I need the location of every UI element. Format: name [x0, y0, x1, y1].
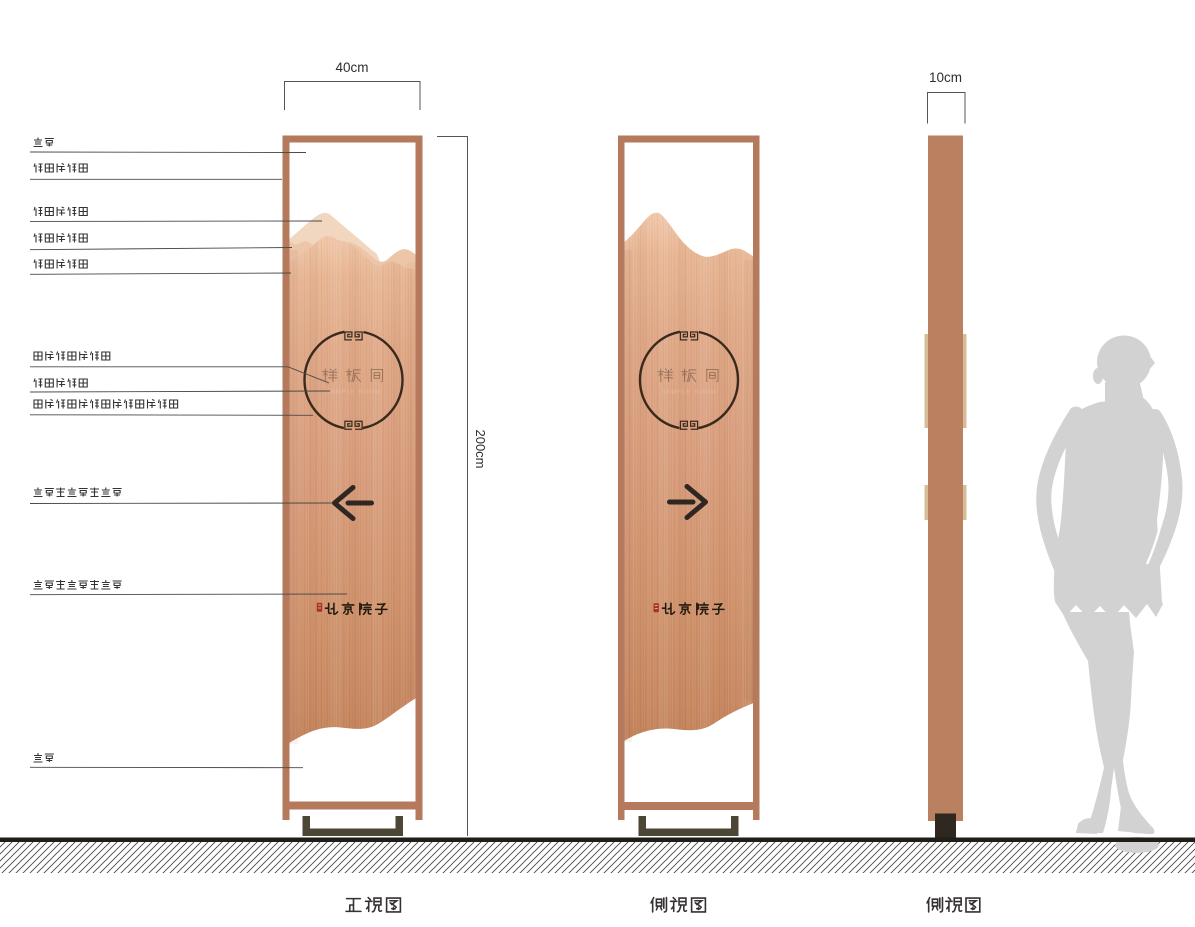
svg-text:10cm: 10cm	[929, 70, 962, 85]
svg-text:40cm: 40cm	[335, 60, 368, 75]
svg-text:SAMPLE ROOM: SAMPLE ROOM	[662, 390, 717, 396]
svg-text:200cm: 200cm	[473, 429, 488, 468]
svg-text:SAMPLE ROOM: SAMPLE ROOM	[326, 390, 381, 396]
